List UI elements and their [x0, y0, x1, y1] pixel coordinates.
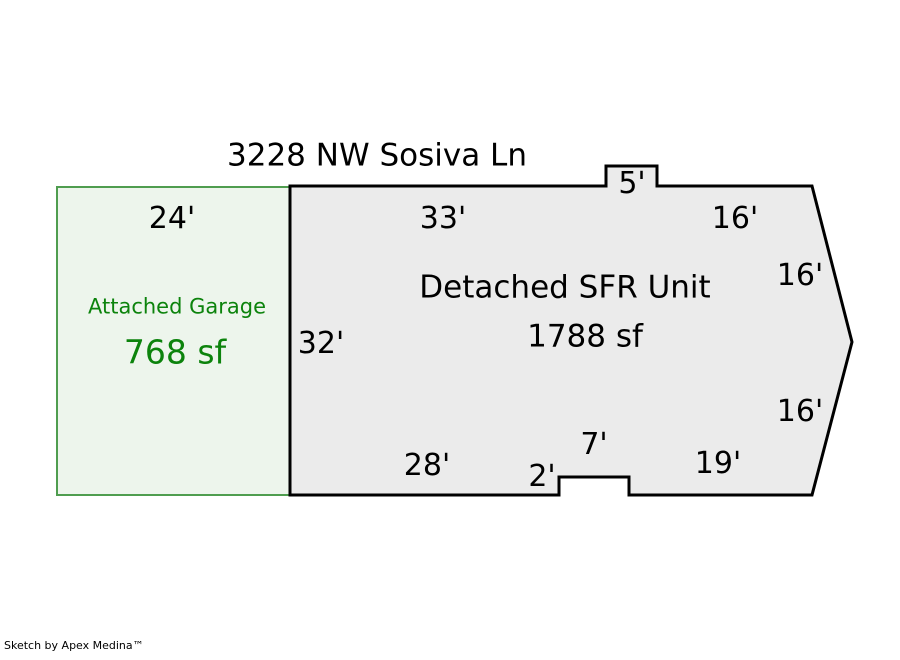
- plan-canvas: [0, 0, 900, 660]
- floor-plan-sketch: 3228 NW Sosiva Ln 24' Attached Garage 76…: [0, 0, 900, 660]
- unit-dim-top: 33': [420, 204, 466, 234]
- unit-dim-notch-width: 7': [580, 430, 607, 460]
- garage-area: 768 sf: [124, 336, 226, 369]
- sketch-credit: Sketch by Apex Medina™: [4, 639, 144, 652]
- unit-dim-upper-right: 16': [777, 261, 823, 291]
- unit-name: Detached SFR Unit: [419, 273, 710, 304]
- garage-dim-top: 24': [149, 204, 195, 234]
- unit-dim-notch-height: 2': [528, 462, 555, 492]
- unit-dim-bump: 5': [618, 169, 645, 199]
- unit-dim-bottom: 28': [404, 451, 450, 481]
- unit-dim-lower-right: 16': [777, 397, 823, 427]
- unit-area: 1788 sf: [527, 322, 643, 353]
- unit-dim-bottom-right: 19': [695, 449, 741, 479]
- unit-dim-top-right: 16': [712, 204, 758, 234]
- sketch-title: 3228 NW Sosiva Ln: [227, 141, 527, 172]
- unit-dim-left: 32': [298, 329, 344, 359]
- garage-name: Attached Garage: [88, 297, 266, 318]
